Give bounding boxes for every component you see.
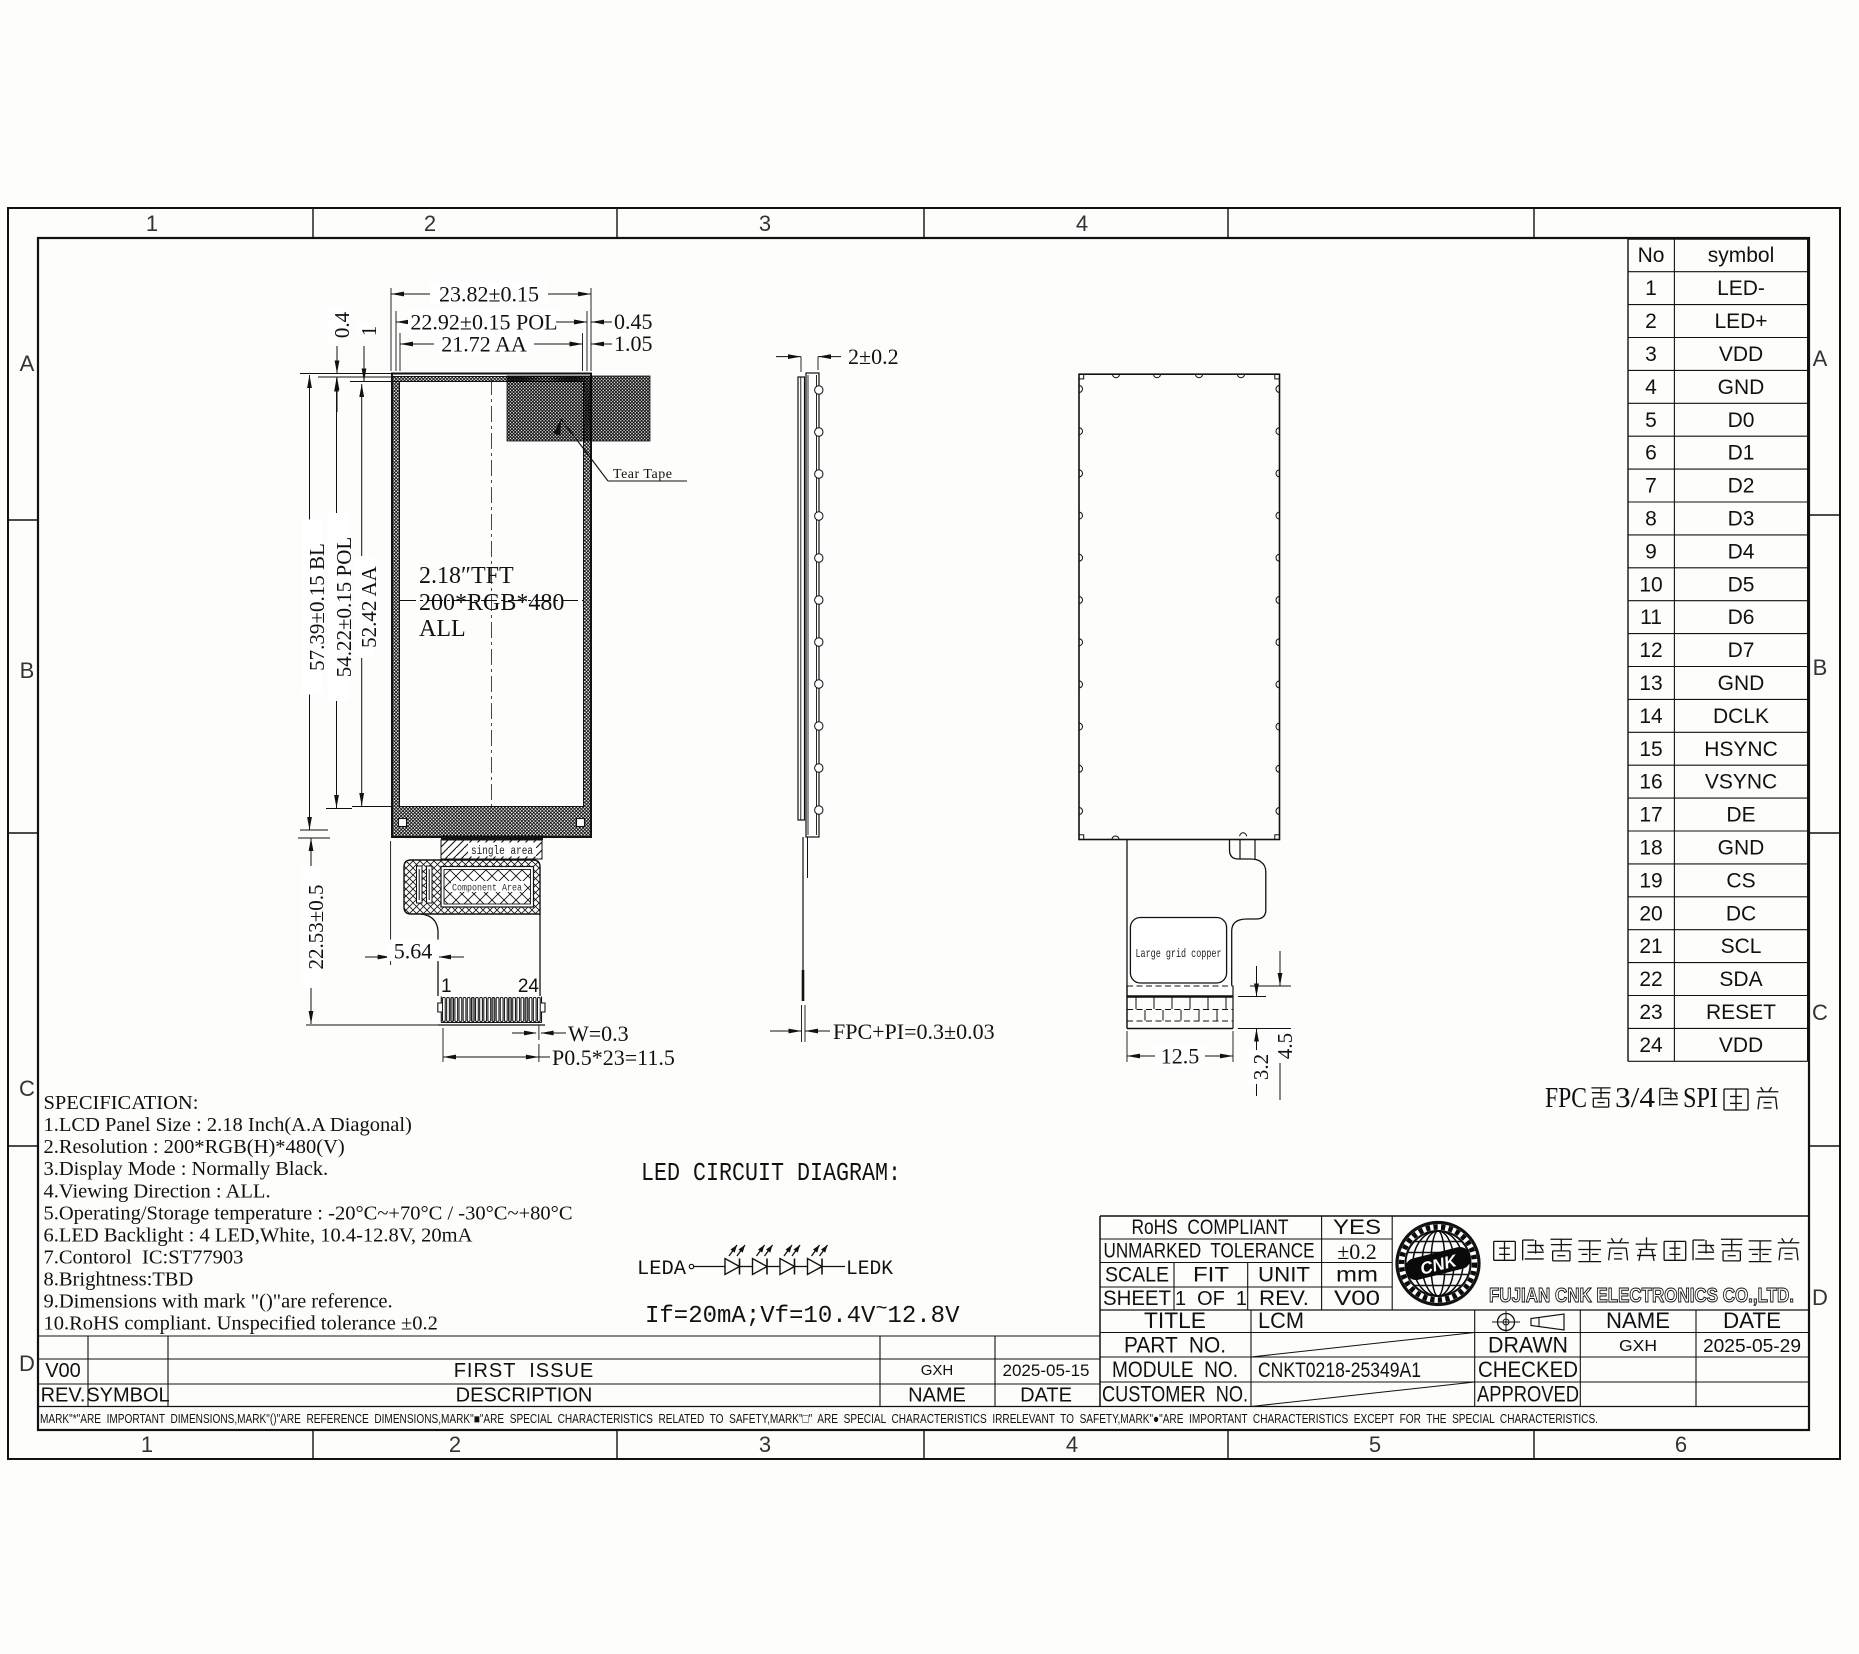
svg-text:V00: V00 [45, 1360, 81, 1382]
svg-text:14: 14 [1639, 705, 1663, 728]
svg-text:A: A [20, 351, 35, 376]
svg-text:SYMBOL: SYMBOL [86, 1385, 169, 1407]
svg-text:200*RGB*480: 200*RGB*480 [419, 590, 564, 616]
svg-text:SPI: SPI [1683, 1083, 1718, 1114]
svg-text:NAME: NAME [1606, 1308, 1670, 1333]
svg-text:SPECIFICATION:: SPECIFICATION: [44, 1092, 199, 1114]
svg-text:DESCRIPTION: DESCRIPTION [456, 1385, 593, 1407]
svg-text:W=0.3: W=0.3 [568, 1021, 629, 1046]
svg-text:2.Resolution : 200*RGB(H)*480(: 2.Resolution : 200*RGB(H)*480(V) [44, 1136, 345, 1158]
svg-text:APPROVED: APPROVED [1477, 1382, 1579, 1407]
svg-text:LED CIRCUIT DIAGRAM:: LED CIRCUIT DIAGRAM: [641, 1158, 901, 1188]
svg-text:4.5: 4.5 [1273, 1033, 1297, 1059]
svg-text:54.22±0.15 POL: 54.22±0.15 POL [332, 537, 356, 677]
svg-text:6: 6 [1645, 442, 1657, 465]
svg-text:VDD: VDD [1719, 343, 1763, 366]
svg-text:±0.2: ±0.2 [1337, 1239, 1377, 1264]
svg-text:1: 1 [146, 211, 158, 236]
svg-text:1: 1 [1645, 277, 1657, 300]
svg-text:MARK"*"ARE IMPORTANT DIMENSI: MARK"*"ARE IMPORTANT DIMENSIONS,MARK"()"… [40, 1412, 1598, 1426]
svg-text:TITLE: TITLE [1144, 1308, 1206, 1333]
svg-text:2: 2 [424, 211, 436, 236]
svg-text:single area: single area [471, 845, 533, 858]
svg-text:24: 24 [1639, 1034, 1663, 1057]
svg-text:12.5: 12.5 [1161, 1043, 1200, 1068]
svg-text:22.53±0.5: 22.53±0.5 [304, 884, 328, 969]
svg-text:24: 24 [518, 976, 540, 997]
svg-text:6: 6 [1675, 1432, 1687, 1457]
svg-text:FIT: FIT [1193, 1264, 1229, 1287]
svg-text:19: 19 [1639, 869, 1662, 892]
svg-text:8.Brightness:TBD: 8.Brightness:TBD [44, 1269, 194, 1291]
svg-text:PART NO.: PART NO. [1124, 1333, 1226, 1358]
svg-text:11: 11 [1640, 606, 1662, 629]
svg-text:HSYNC: HSYNC [1704, 738, 1778, 761]
svg-text:20: 20 [1639, 902, 1662, 925]
svg-text:D2: D2 [1728, 475, 1755, 498]
svg-text:23.82±0.15: 23.82±0.15 [439, 281, 539, 306]
svg-text:C: C [19, 1076, 35, 1101]
svg-text:23: 23 [1639, 1001, 1662, 1024]
svg-text:9.Dimensions with mark "()"are: 9.Dimensions with mark "()"are reference… [44, 1291, 393, 1313]
svg-text:FPC: FPC [1545, 1083, 1587, 1114]
svg-text:B: B [20, 658, 35, 683]
svg-text:D3: D3 [1728, 508, 1755, 531]
svg-text:mm: mm [1336, 1264, 1378, 1287]
svg-text:A: A [1813, 346, 1828, 371]
svg-text:2025-05-29: 2025-05-29 [1703, 1336, 1801, 1356]
svg-text:D5: D5 [1728, 573, 1755, 596]
svg-text:7: 7 [1645, 475, 1657, 498]
svg-text:UNMARKED TOLERANCE: UNMARKED TOLERANCE [1104, 1240, 1315, 1263]
svg-text:DATE: DATE [1723, 1308, 1781, 1333]
svg-text:D: D [19, 1351, 35, 1376]
svg-text:LCM: LCM [1258, 1308, 1304, 1333]
svg-text:0.4: 0.4 [330, 311, 354, 338]
svg-text:22: 22 [1639, 968, 1662, 991]
svg-text:DATE: DATE [1020, 1385, 1072, 1407]
svg-text:FPC+PI=0.3±0.03: FPC+PI=0.3±0.03 [833, 1019, 995, 1044]
svg-text:Tear Tape: Tear Tape [613, 467, 672, 482]
svg-text:5: 5 [1645, 409, 1657, 432]
svg-text:5.64: 5.64 [394, 938, 433, 963]
svg-text:SDA: SDA [1719, 968, 1762, 991]
svg-text:CS: CS [1726, 869, 1755, 892]
svg-text:4: 4 [1076, 211, 1088, 236]
svg-text:17: 17 [1639, 804, 1662, 827]
svg-text:DCLK: DCLK [1713, 705, 1769, 728]
svg-text:21.72 AA: 21.72 AA [441, 331, 527, 356]
svg-text:15: 15 [1639, 738, 1662, 761]
svg-text:12: 12 [1639, 639, 1662, 662]
svg-text:4: 4 [1645, 376, 1657, 399]
svg-text:SCALE: SCALE [1105, 1264, 1169, 1287]
svg-text:CUSTOMER NO.: CUSTOMER NO. [1102, 1382, 1248, 1407]
svg-text:SCL: SCL [1721, 935, 1762, 958]
svg-text:LEDK: LEDK [846, 1258, 893, 1281]
svg-text:FUJIAN CNK ELECTRONICS CO.,LTD: FUJIAN CNK ELECTRONICS CO.,LTD. [1489, 1284, 1794, 1307]
svg-text:10: 10 [1639, 573, 1662, 596]
svg-text:DE: DE [1726, 804, 1755, 827]
svg-text:REV.: REV. [1259, 1287, 1309, 1310]
svg-text:5: 5 [1369, 1432, 1381, 1457]
svg-text:1.05: 1.05 [614, 331, 653, 356]
svg-text:1: 1 [141, 1432, 153, 1457]
svg-text:D0: D0 [1728, 409, 1755, 432]
svg-text:21: 21 [1639, 935, 1662, 958]
svg-text:2±0.2: 2±0.2 [848, 344, 899, 369]
svg-text:D: D [1812, 1285, 1828, 1310]
svg-text:7.Contorol IC:ST77903: 7.Contorol IC:ST77903 [44, 1246, 244, 1268]
svg-text:D7: D7 [1728, 639, 1755, 662]
svg-text:GXH: GXH [921, 1362, 954, 1379]
svg-text:2: 2 [449, 1432, 461, 1457]
svg-text:2025-05-15: 2025-05-15 [1003, 1361, 1090, 1380]
svg-text:SHEET: SHEET [1103, 1287, 1171, 1310]
svg-text:LED-: LED- [1717, 277, 1765, 300]
svg-text:18: 18 [1639, 837, 1662, 860]
svg-text:3: 3 [759, 1432, 771, 1457]
svg-text:symbol: symbol [1708, 244, 1775, 267]
svg-text:UNIT: UNIT [1258, 1264, 1310, 1287]
svg-text:VDD: VDD [1719, 1034, 1763, 1057]
svg-text:GND: GND [1718, 837, 1765, 860]
svg-text:3: 3 [1645, 343, 1657, 366]
svg-text:1: 1 [357, 326, 381, 337]
svg-text:1: 1 [441, 976, 452, 997]
svg-text:B: B [1813, 655, 1828, 680]
svg-text:3.2: 3.2 [1249, 1054, 1273, 1080]
svg-text:MODULE NO.: MODULE NO. [1112, 1357, 1238, 1382]
svg-text:NAME: NAME [908, 1385, 966, 1407]
svg-text:5.Operating/Storage temperatur: 5.Operating/Storage temperature : -20°C~… [44, 1202, 573, 1224]
svg-text:LEDA: LEDA [637, 1258, 686, 1281]
svg-text:FIRST ISSUE: FIRST ISSUE [454, 1360, 595, 1382]
svg-text:GND: GND [1718, 376, 1765, 399]
svg-text:GND: GND [1718, 672, 1765, 695]
svg-text:No: No [1638, 244, 1665, 267]
svg-text:3: 3 [759, 211, 771, 236]
svg-text:If=20mA;Vf=10.4V~12.8V: If=20mA;Vf=10.4V~12.8V [645, 1298, 960, 1330]
svg-text:3/4: 3/4 [1615, 1083, 1655, 1114]
svg-text:GXH: GXH [1619, 1338, 1657, 1355]
svg-text:D1: D1 [1728, 442, 1755, 465]
svg-text:Component Area: Component Area [452, 884, 522, 895]
svg-text:REV.: REV. [41, 1385, 86, 1407]
svg-text:1.LCD Panel Size : 2.18 Inch(A: 1.LCD Panel Size : 2.18 Inch(A.A Diagona… [44, 1114, 412, 1136]
svg-text:4: 4 [1066, 1432, 1078, 1457]
svg-text:ALL: ALL [419, 616, 466, 642]
svg-text:3.Display Mode : Normally Blac: 3.Display Mode : Normally Black. [44, 1158, 329, 1180]
svg-text:1 OF 1: 1 OF 1 [1175, 1288, 1247, 1310]
svg-text:V00: V00 [1334, 1287, 1380, 1310]
svg-text:6.LED Backlight : 4 LED,White,: 6.LED Backlight : 4 LED,White, 10.4-12.8… [44, 1224, 473, 1246]
svg-text:2.18″TFT: 2.18″TFT [419, 563, 514, 589]
svg-text:CNKT0218-25349A1: CNKT0218-25349A1 [1258, 1359, 1421, 1382]
svg-text:57.39±0.15 BL: 57.39±0.15 BL [305, 543, 329, 671]
svg-text:LED+: LED+ [1714, 310, 1767, 333]
svg-text:10.RoHS compliant. Unspecified: 10.RoHS compliant. Unspecified tolerance… [44, 1313, 438, 1335]
svg-text:CHECKED: CHECKED [1478, 1357, 1578, 1382]
svg-text:52.42 AA: 52.42 AA [357, 565, 381, 648]
svg-text:RESET: RESET [1706, 1001, 1776, 1024]
svg-text:D6: D6 [1728, 606, 1755, 629]
svg-text:DRAWN: DRAWN [1488, 1333, 1568, 1358]
svg-text:4.Viewing Direction : ALL.: 4.Viewing Direction : ALL. [44, 1180, 271, 1202]
svg-text:RoHS COMPLIANT: RoHS COMPLIANT [1132, 1216, 1289, 1239]
svg-text:YES: YES [1333, 1216, 1381, 1239]
svg-text:8: 8 [1645, 508, 1657, 531]
svg-text:9: 9 [1645, 540, 1657, 563]
svg-text:VSYNC: VSYNC [1705, 771, 1777, 794]
svg-text:13: 13 [1639, 672, 1662, 695]
svg-text:DC: DC [1726, 902, 1756, 925]
svg-text:2: 2 [1645, 310, 1657, 333]
svg-text:16: 16 [1639, 771, 1662, 794]
svg-text:P0.5*23=11.5: P0.5*23=11.5 [552, 1045, 675, 1070]
svg-text:Large grid copper: Large grid copper [1136, 947, 1222, 961]
svg-text:D4: D4 [1728, 540, 1755, 563]
svg-text:C: C [1812, 1000, 1828, 1025]
